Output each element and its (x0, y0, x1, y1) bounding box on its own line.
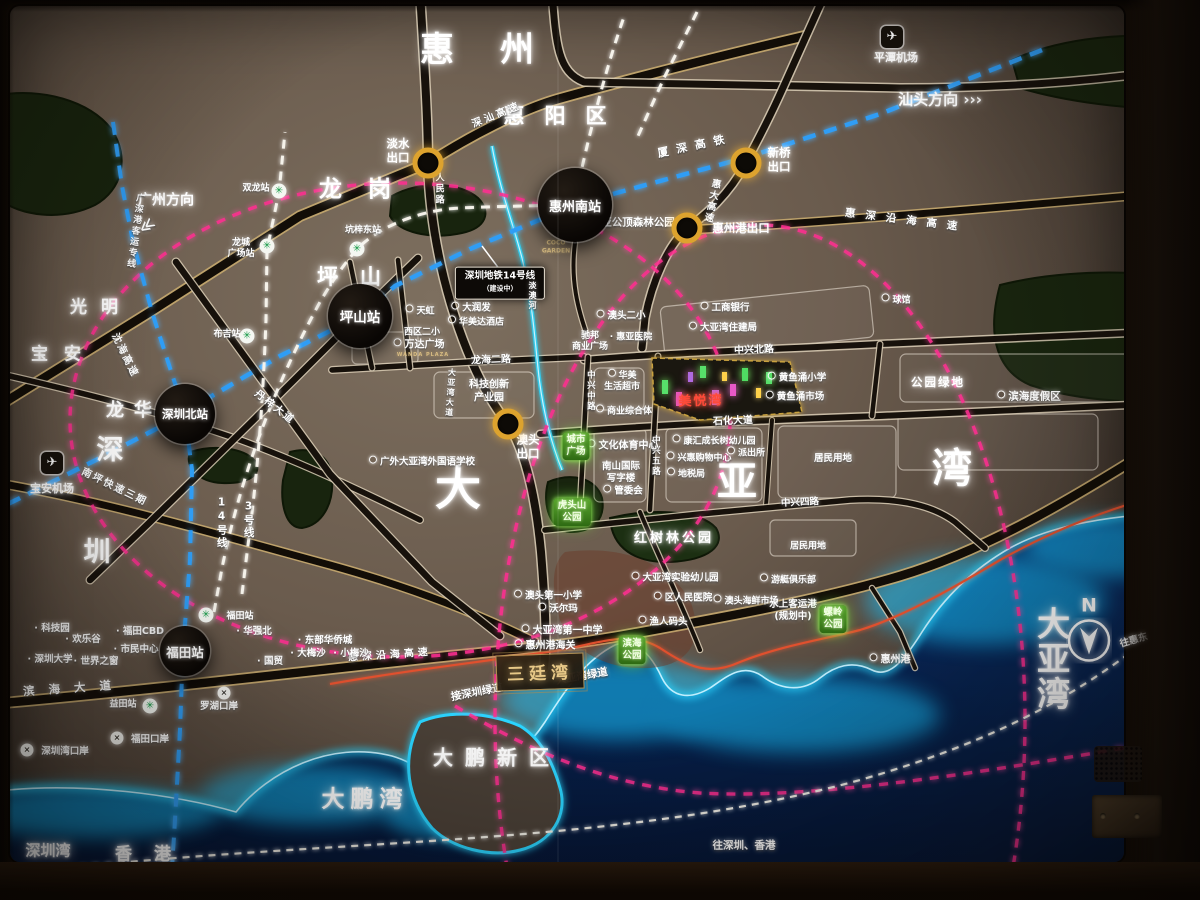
compass-north: N (1066, 595, 1112, 668)
project-logo-santingwan: 三廷湾 (495, 652, 584, 691)
compass-n-letter: N (1066, 595, 1112, 617)
speaker-grille (1094, 746, 1142, 782)
compass-icon (1066, 618, 1112, 664)
board-panel-seam (557, 6, 559, 862)
floor-ledge (0, 862, 1200, 900)
project-parcel (554, 550, 696, 668)
map-artwork (10, 6, 1124, 862)
map-board-photo: 惠州惠阳区龙岗坪山光明宝安龙华深圳大亚湾大亚湾大鹏新区大鹏湾深圳湾香港广州方向≪… (0, 0, 1200, 900)
project-site-model (652, 358, 802, 420)
wall-plate (1092, 795, 1162, 838)
metro-line14-label-box: 深圳地铁14号线 （建设中） (455, 267, 545, 300)
